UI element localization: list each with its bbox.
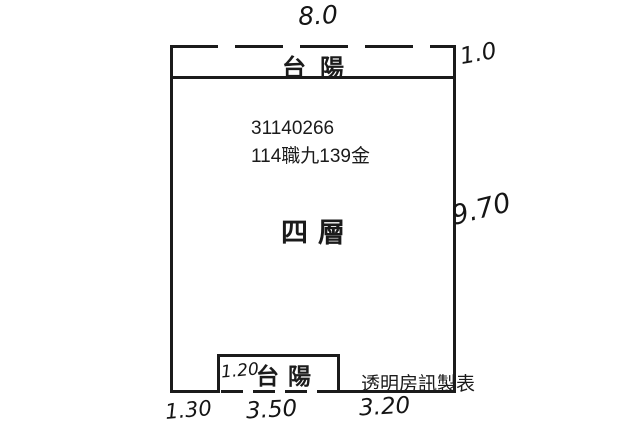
bottom-left-dimension: 1.30 — [164, 396, 213, 424]
bottom-balcony-width-dimension: 3.50 — [245, 396, 298, 425]
bottom-balcony-label: 台陽 — [256, 357, 320, 391]
bottom-edge-left-segment — [170, 390, 220, 393]
credit-label: 透明房訊製表 — [361, 369, 475, 396]
top-balcony-depth-dimension: 1.0 — [458, 38, 499, 70]
unit-number: 31140266 — [251, 118, 334, 140]
floor-label: 四層 — [170, 211, 456, 250]
unit-code: 114職九139金 — [251, 141, 370, 168]
top-width-dimension: 8.0 — [282, 0, 353, 32]
bottom-right-dimension: 3.20 — [358, 393, 411, 422]
bottom-balcony-depth-dimension: 1.20 — [220, 359, 259, 382]
right-height-dimension: 9.70 — [448, 187, 514, 232]
floorplan-canvas: 8.0 台陽 1.0 31140266 114職九139金 四層 9.70 1.… — [0, 0, 640, 443]
